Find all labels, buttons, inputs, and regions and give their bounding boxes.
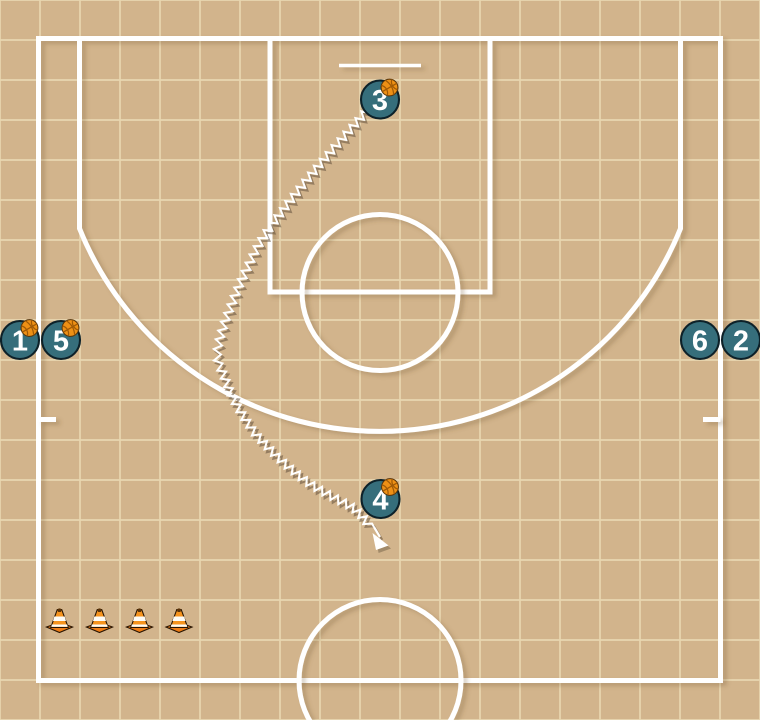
svg-text:6: 6 bbox=[692, 325, 708, 357]
svg-text:2: 2 bbox=[733, 325, 749, 357]
